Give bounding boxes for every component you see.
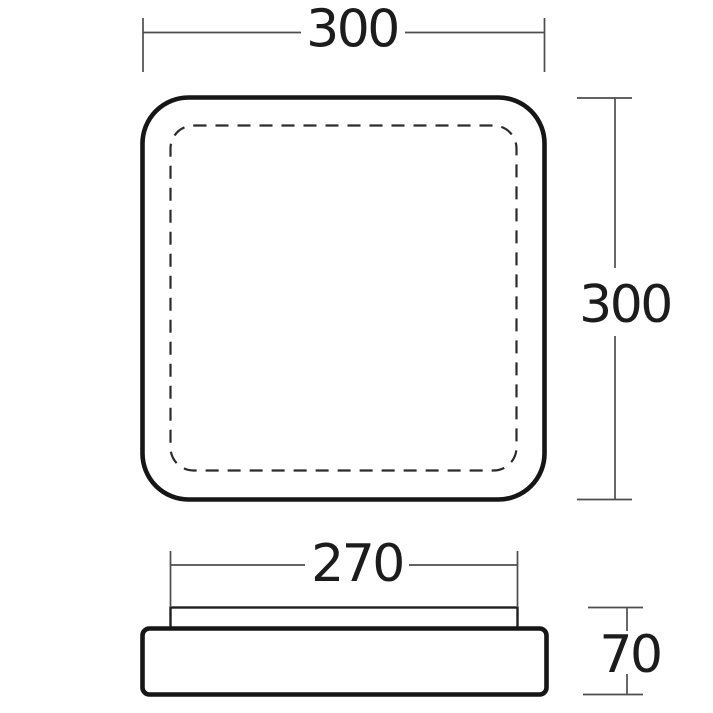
side-view: [143, 608, 547, 695]
diffuser-width-label: 270: [311, 534, 403, 594]
top-width-dimension: 300: [143, 0, 545, 72]
fixture-height-dimension: 70: [583, 608, 661, 695]
top-width-label: 300: [306, 0, 398, 60]
dimension-diagram: 300 300 270 70: [0, 0, 713, 713]
top-view: [143, 98, 545, 500]
fixture-outer-outline: [143, 98, 545, 500]
top-height-dimension: 300: [577, 98, 671, 500]
dimension-diagram-canvas: 300 300 270 70: [0, 0, 713, 713]
top-height-label: 300: [579, 275, 671, 335]
fixture-height-label: 70: [599, 625, 660, 685]
side-base-profile: [143, 629, 547, 695]
diffuser-width-dimension: 270: [171, 534, 518, 606]
